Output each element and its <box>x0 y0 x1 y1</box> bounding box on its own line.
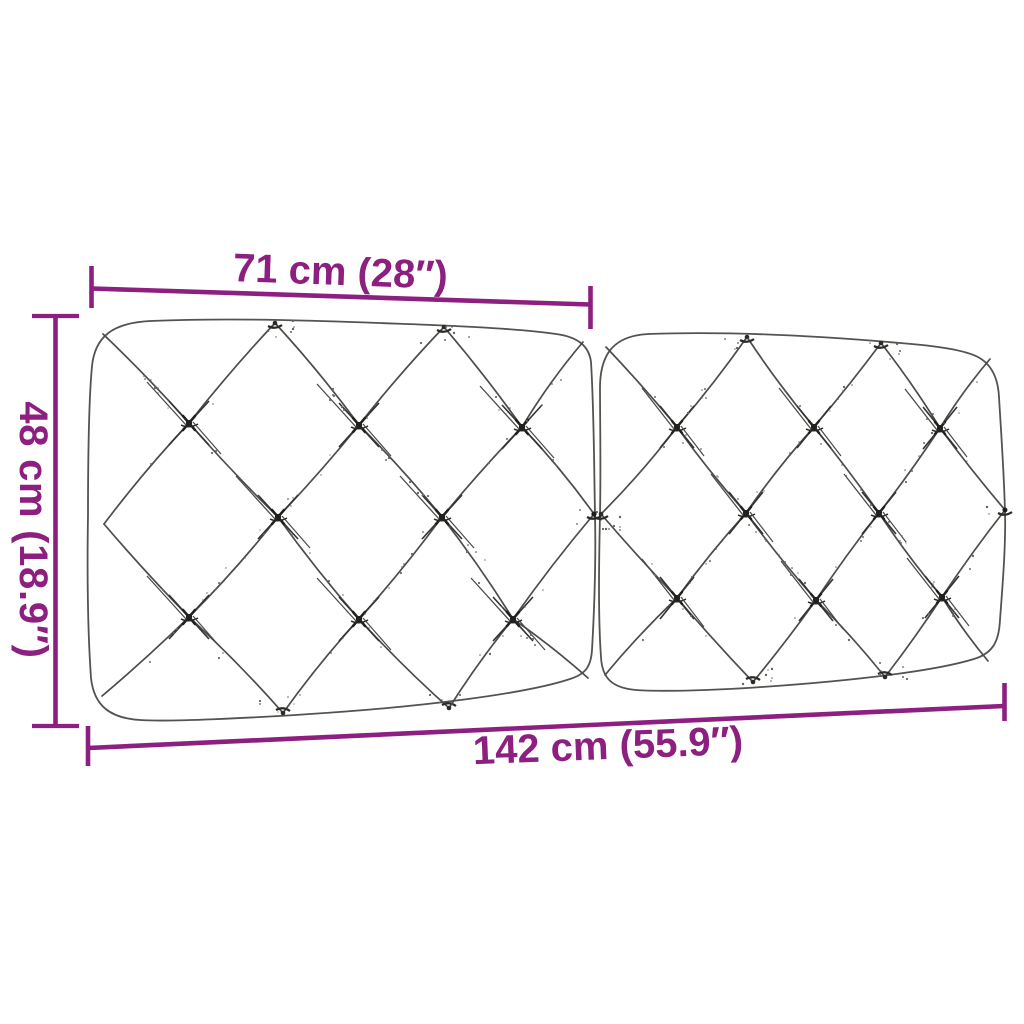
svg-text:48 cm (18.9″): 48 cm (18.9″) <box>11 401 55 658</box>
svg-text:71 cm (28″): 71 cm (28″) <box>232 246 448 298</box>
